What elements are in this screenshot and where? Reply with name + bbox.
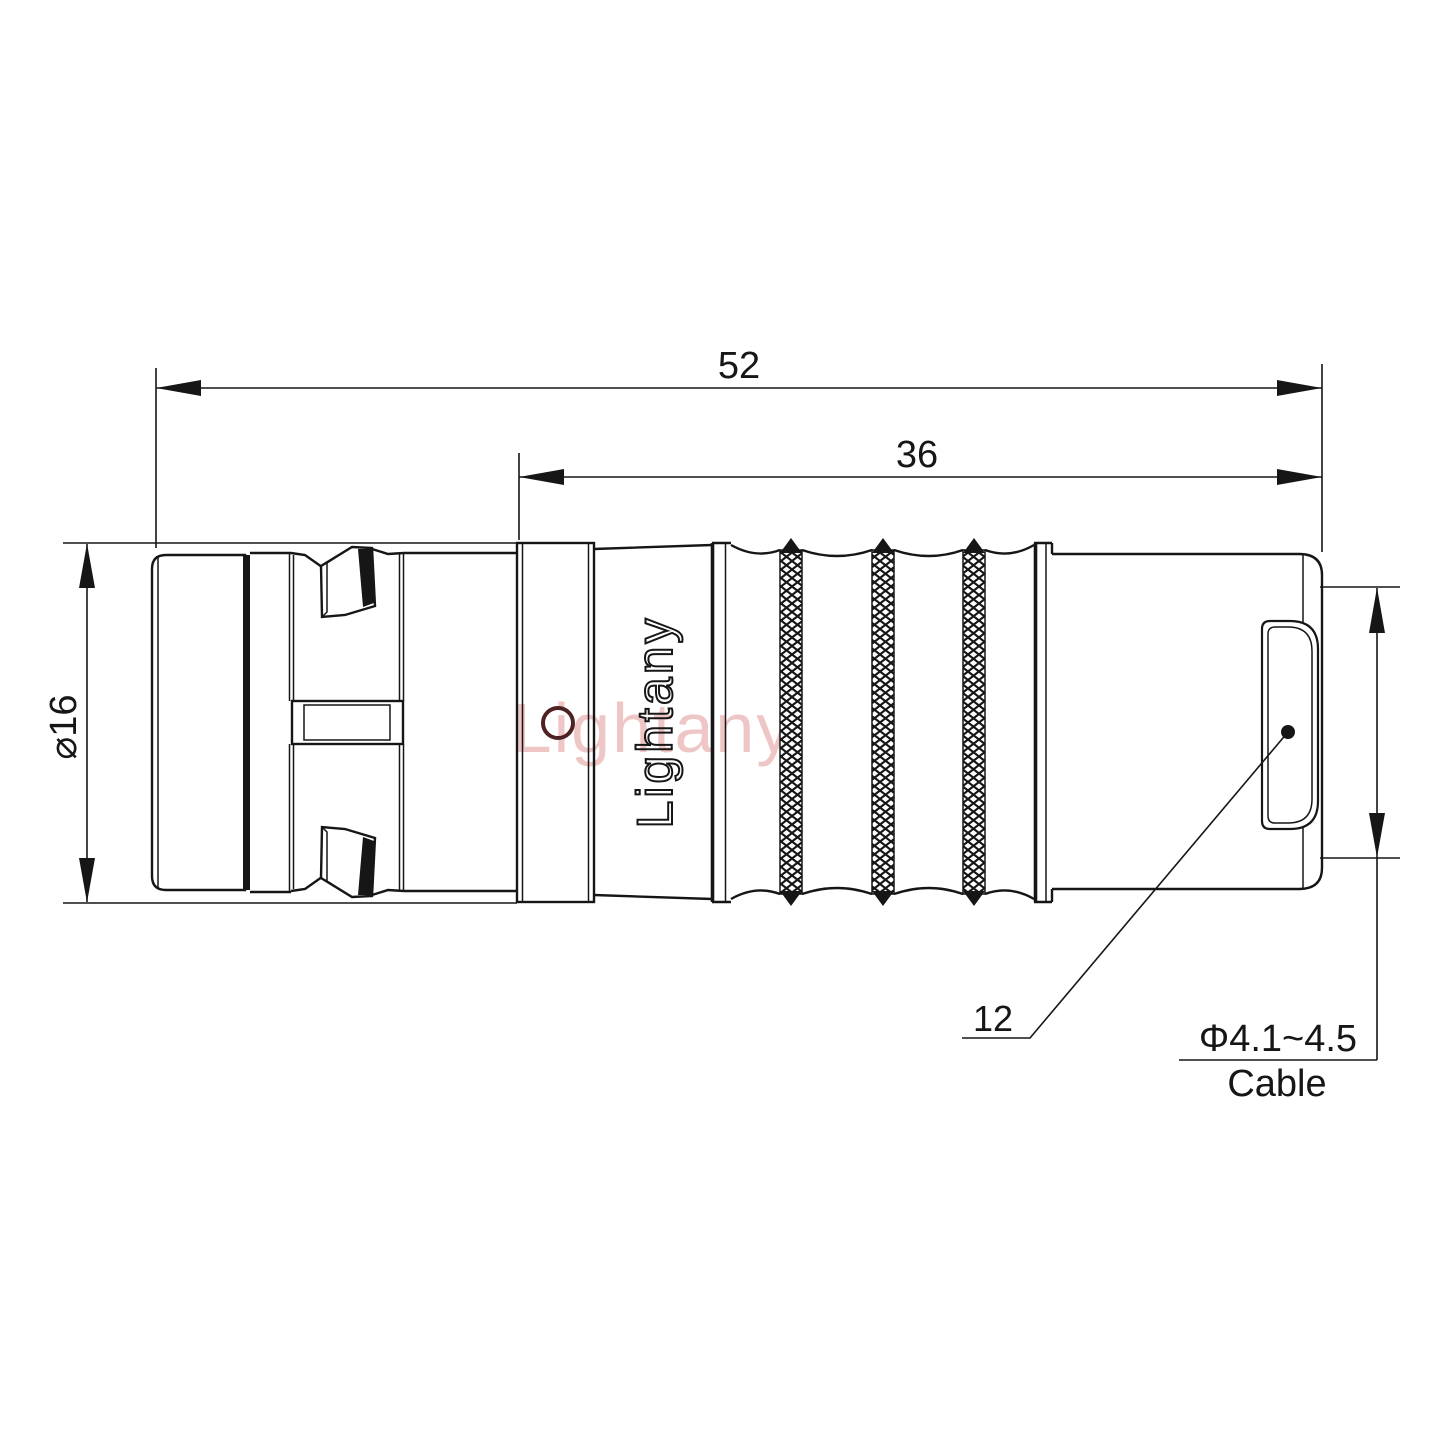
leader-label-12: 12: [962, 732, 1288, 1039]
bayonet-middle-bar-inner: [304, 705, 390, 740]
front-cap: [152, 555, 250, 890]
connector-technical-drawing: Lightany: [0, 0, 1440, 1440]
knurl-band: [780, 538, 802, 906]
dim-dia16-label: ⌀16: [43, 694, 85, 759]
cable-bushing-outline: [1262, 621, 1318, 829]
dim-52-label: 52: [718, 345, 760, 387]
label-12: 12: [973, 998, 1013, 1039]
dim-36-label: 36: [896, 434, 938, 476]
bayonet-middle-bar: [292, 701, 403, 744]
bayonet-top-edge: [291, 549, 404, 567]
front-ring: [250, 553, 291, 892]
top-latch-tab: [321, 547, 375, 617]
cable-range-label: Φ4.1~4.5: [1199, 1018, 1357, 1060]
front-barrel-edges: [404, 553, 517, 891]
bottom-latch-tab: [321, 827, 375, 897]
bayonet-section: [290, 547, 405, 897]
drawing-page: Lightany: [0, 0, 1440, 1440]
top-latch-bevel: [321, 547, 352, 617]
knurl-band: [872, 538, 894, 906]
dimension-mid-length: 36: [519, 434, 1322, 485]
brand-engraving-text: Lightany: [627, 615, 683, 828]
front-ring-edges: [250, 553, 291, 892]
bayonet-side-lines: [290, 553, 404, 891]
front-cap-edge-band: [243, 555, 250, 890]
bayonet-bottom-edge: [291, 877, 404, 895]
knurl-band: [963, 538, 985, 906]
dimension-overall-length: 52: [156, 345, 1322, 396]
front-cap-outline: [152, 555, 245, 890]
bottom-latch-bevel: [321, 827, 352, 897]
front-barrel: [404, 553, 517, 891]
dimension-diameter: ⌀16: [43, 544, 95, 903]
cable-word-label: Cable: [1227, 1063, 1326, 1105]
extension-lines: [63, 364, 1400, 903]
leader-line-12: [962, 732, 1288, 1038]
rear-barrel: [1052, 554, 1322, 889]
